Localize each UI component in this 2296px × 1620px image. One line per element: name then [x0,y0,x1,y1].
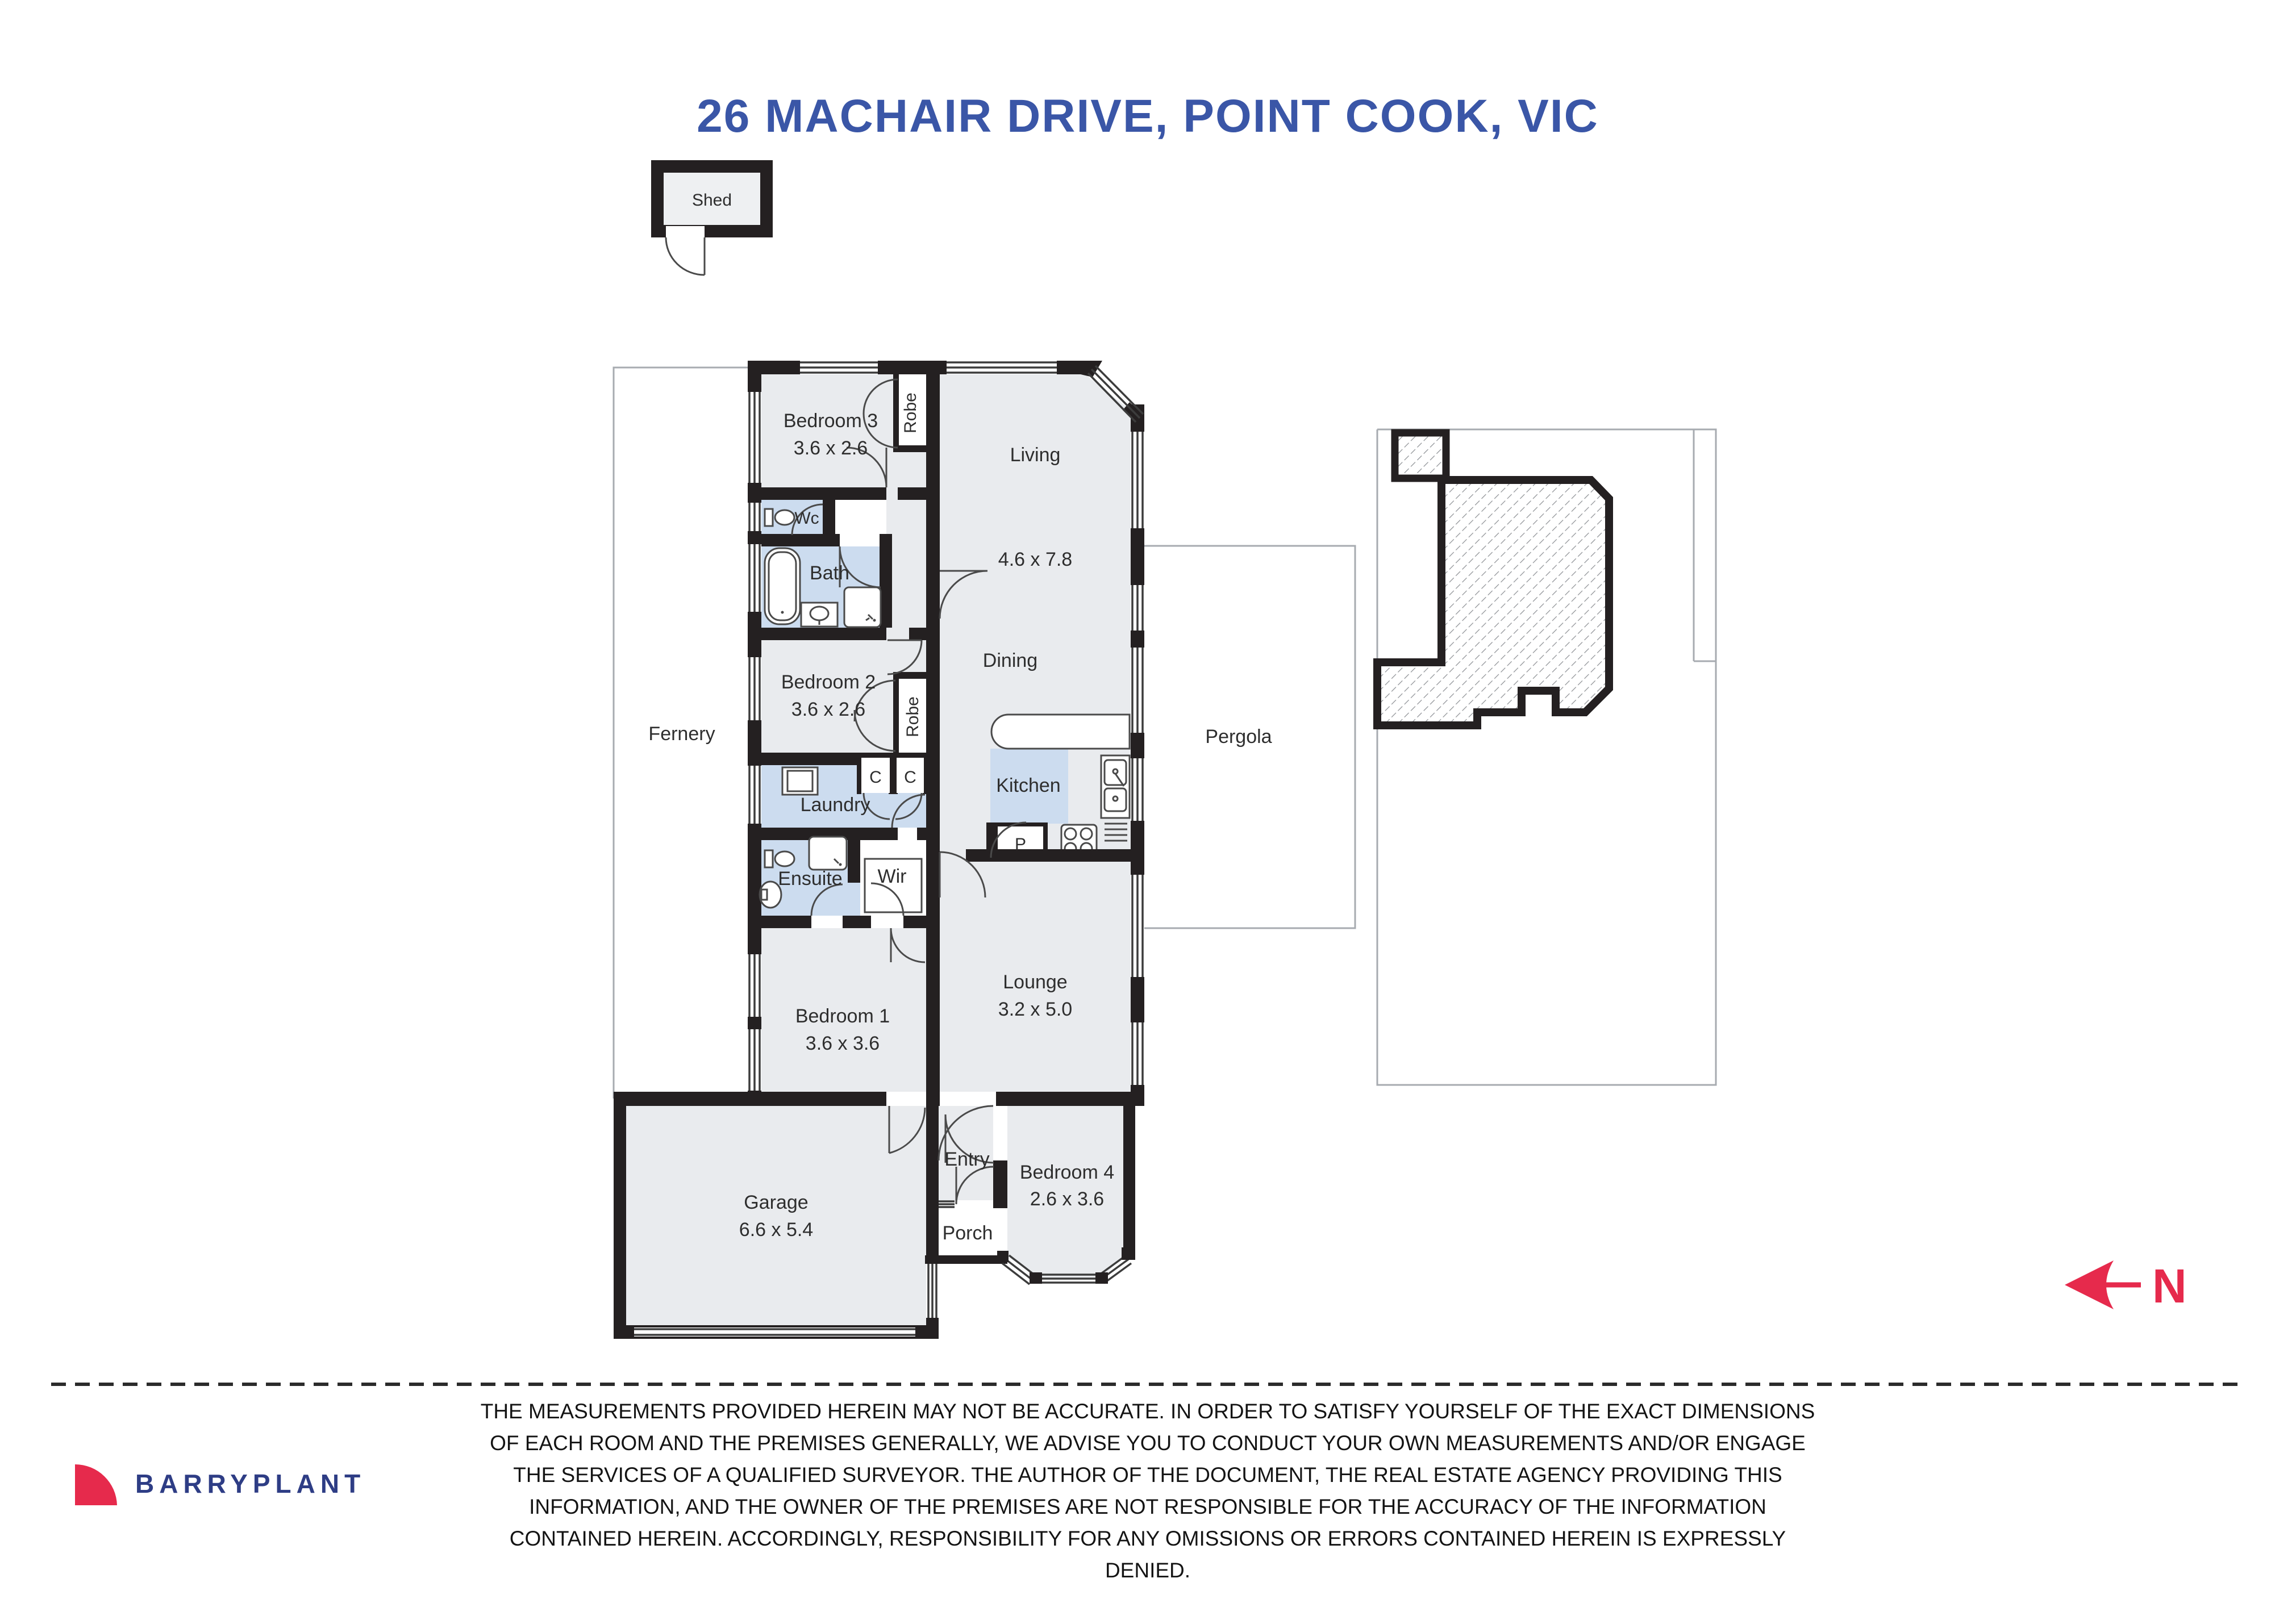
laundry-label: Laundry [801,794,870,816]
bedroom4-dims: 2.6 x 3.6 [1030,1188,1104,1210]
porch-sidelight-window [939,1200,955,1208]
toilet-ensuite-icon [765,850,794,867]
fernery-label: Fernery [648,723,715,745]
disclaimer-line: DENIED. [1105,1559,1190,1582]
entry-label: Entry [944,1149,989,1170]
washer-icon [782,767,818,795]
bath-label: Bath [810,562,849,584]
living-dims: 4.6 x 7.8 [998,549,1072,570]
bedroom4-label: Bedroom 4 [1020,1162,1114,1183]
north-arrow-icon: N [2065,1259,2187,1313]
closet-right-label: C [904,768,916,787]
bathtub-icon [765,548,800,624]
bedroom3-label: Bedroom 3 [784,410,878,432]
living-label: Living [1010,444,1061,466]
dining-label: Dining [983,650,1037,671]
wc-label: Wc [794,509,819,528]
disclaimer: THE MEASUREMENTS PROVIDED HEREIN MAY NOT… [481,1400,1815,1582]
bedroom1-label: Bedroom 1 [795,1005,890,1027]
disclaimer-line: THE MEASUREMENTS PROVIDED HEREIN MAY NOT… [481,1400,1815,1423]
floorplan-canvas: 26 MACHAIR DRIVE, POINT COOK, VIC Shed [0,0,2296,1620]
brand-name: BARRYPLANT [135,1469,365,1498]
window-below-porch [926,1264,939,1318]
bedroom1-dims: 3.6 x 3.6 [806,1033,880,1054]
robe-bed3-label: Robe [901,393,920,433]
shed: Shed [651,160,773,275]
brand-logo: BARRYPLANT [75,1464,365,1505]
disclaimer-line: OF EACH ROOM AND THE PREMISES GENERALLY,… [490,1431,1806,1455]
lounge-dims: 3.2 x 5.0 [998,999,1072,1020]
bath-vanity-icon [801,603,837,627]
garage-label: Garage [744,1192,808,1213]
window-top-bed3 [800,361,878,374]
wir-label: Wir [878,866,907,887]
bedroom2-label: Bedroom 2 [781,671,876,693]
lounge-label: Lounge [1003,971,1067,993]
north-label: N [2152,1259,2187,1313]
bath-shower-icon [844,587,881,627]
closet-left-label: C [869,768,882,787]
page-title: 26 MACHAIR DRIVE, POINT COOK, VIC [697,90,1599,142]
kitchen-label: Kitchen [996,775,1060,796]
ensuite-shower-icon [809,837,847,870]
pantry-label: P [1015,835,1026,854]
kitchen-bench [991,715,1130,749]
disclaimer-line: THE SERVICES OF A QUALIFIED SURVEYOR. TH… [513,1463,1782,1487]
ensuite-label: Ensuite [778,868,842,890]
floorplan-page: 26 MACHAIR DRIVE, POINT COOK, VIC Shed [0,0,2296,1620]
garage-dims: 6.6 x 5.4 [739,1219,813,1241]
bedroom2-dims: 3.6 x 2.6 [791,699,865,720]
neighbour-building-footprint [1377,480,1609,725]
robe-bed2-label: Robe [903,696,922,737]
disclaimer-line: INFORMATION, AND THE OWNER OF THE PREMIS… [529,1495,1766,1518]
window-top-living [947,361,1057,374]
bedroom3-dims: 3.6 x 2.6 [794,437,868,459]
neighbour-structures [1377,433,1609,725]
toilet-wc-icon [765,509,794,526]
brand-mark-icon [75,1464,117,1505]
porch-label: Porch [943,1222,993,1244]
disclaimer-line: CONTAINED HEREIN. ACCORDINGLY, RESPONSIB… [510,1527,1786,1550]
shed-label: Shed [692,191,732,210]
pergola-label: Pergola [1205,726,1272,748]
garage-door-band [634,1327,915,1337]
